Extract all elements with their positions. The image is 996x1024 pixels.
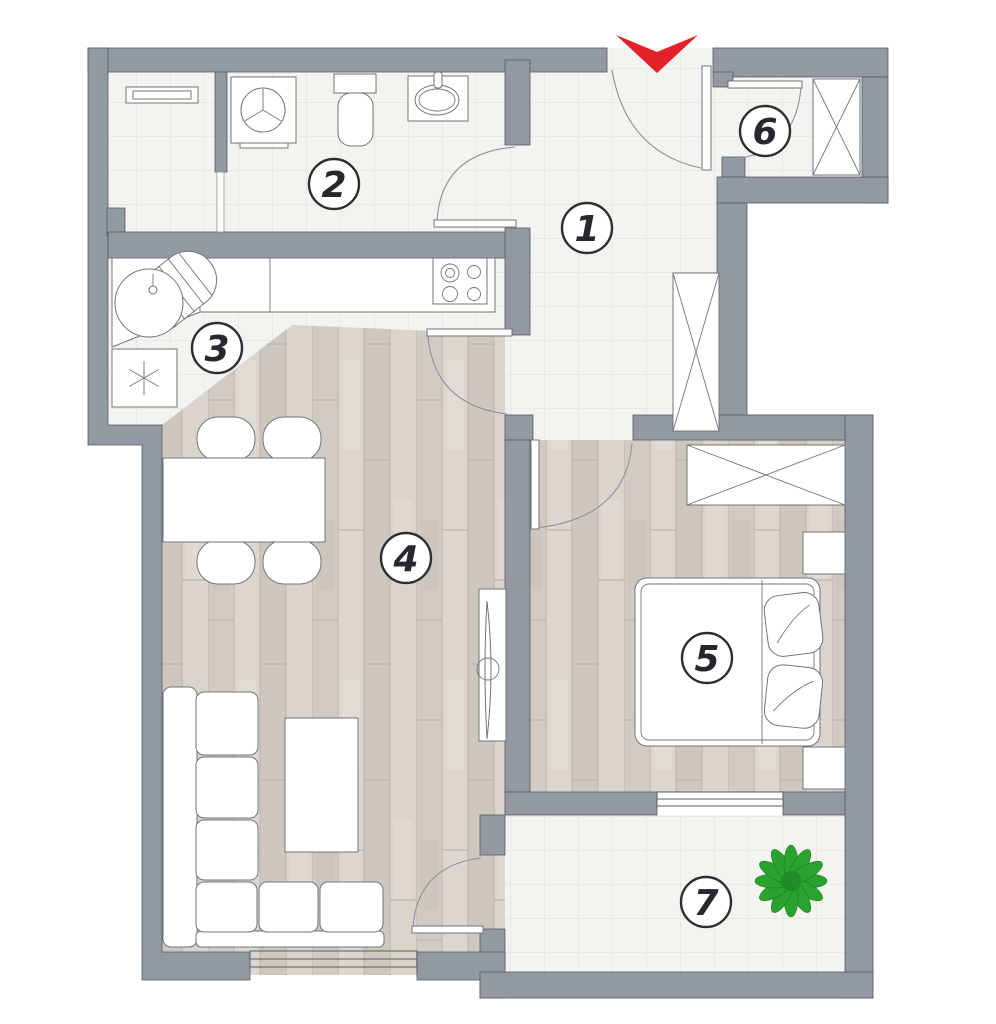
bedroom-terrace-window bbox=[657, 792, 783, 806]
pillow bbox=[763, 663, 824, 729]
floor-plan-page: 1 2 3 4 5 6 7 bbox=[0, 0, 996, 1024]
wall-closet-bottom bbox=[717, 177, 888, 203]
towel-radiator bbox=[126, 87, 198, 103]
room-badge-6: 6 bbox=[740, 106, 790, 156]
floor-living-door-gap bbox=[505, 335, 530, 415]
wall-bathroom-partition bbox=[215, 72, 227, 172]
wall-bath-kitchen bbox=[108, 232, 530, 258]
svg-text:3: 3 bbox=[204, 329, 229, 370]
wall-outer-right bbox=[845, 415, 873, 998]
room-badge-1: 1 bbox=[562, 203, 612, 253]
wall-hall-west-upper bbox=[505, 60, 530, 145]
svg-text:7: 7 bbox=[693, 883, 718, 924]
svg-text:6: 6 bbox=[752, 112, 777, 153]
tv-stand bbox=[477, 589, 506, 741]
svg-text:5: 5 bbox=[694, 639, 719, 680]
bathroom-glass-partition bbox=[217, 172, 224, 232]
room-badge-5: 5 bbox=[682, 633, 732, 683]
wall-bedroom-bottom-west bbox=[505, 792, 657, 815]
coffee-table bbox=[285, 718, 358, 852]
bathroom-sink bbox=[408, 72, 468, 121]
wall-terrace-bottom bbox=[480, 972, 873, 998]
svg-text:4: 4 bbox=[392, 539, 418, 580]
wall-bedroom-west bbox=[505, 440, 530, 792]
room-badge-3: 3 bbox=[192, 323, 242, 373]
room-badge-4: 4 bbox=[381, 533, 431, 583]
bedroom-wardrobe bbox=[687, 445, 845, 505]
room-badge-2: 2 bbox=[309, 159, 359, 209]
room-badge-7: 7 bbox=[681, 877, 731, 927]
wall-bedroom-bottom-east bbox=[783, 792, 845, 815]
wall-top-right bbox=[713, 48, 888, 77]
wall-bedroom-top-west-stub bbox=[505, 415, 533, 440]
hallway-cabinet bbox=[673, 273, 719, 431]
nightstand bbox=[803, 532, 845, 574]
svg-text:1: 1 bbox=[574, 209, 599, 250]
wall-hall-west-mid bbox=[505, 228, 530, 335]
wall-hall-right bbox=[717, 203, 747, 440]
washing-machine bbox=[231, 77, 296, 148]
floor-bedroom-door-gap bbox=[533, 415, 633, 440]
nightstand bbox=[803, 747, 845, 789]
dining-table bbox=[163, 458, 325, 542]
wall-terrace-west-upper bbox=[480, 815, 505, 855]
floor-bathroom-door-gap bbox=[505, 145, 530, 228]
wall-bedroom-top bbox=[633, 415, 845, 440]
toilet bbox=[334, 74, 376, 146]
cooktop-stove bbox=[433, 258, 487, 304]
wall-closet-door-stub-bottom bbox=[722, 157, 745, 177]
pillow bbox=[763, 591, 825, 658]
kitchen-appliance-box bbox=[112, 349, 177, 407]
floor-plan: 1 2 3 4 5 6 7 bbox=[0, 0, 996, 1024]
closet-wardrobe bbox=[813, 79, 860, 175]
svg-text:2: 2 bbox=[321, 165, 346, 206]
